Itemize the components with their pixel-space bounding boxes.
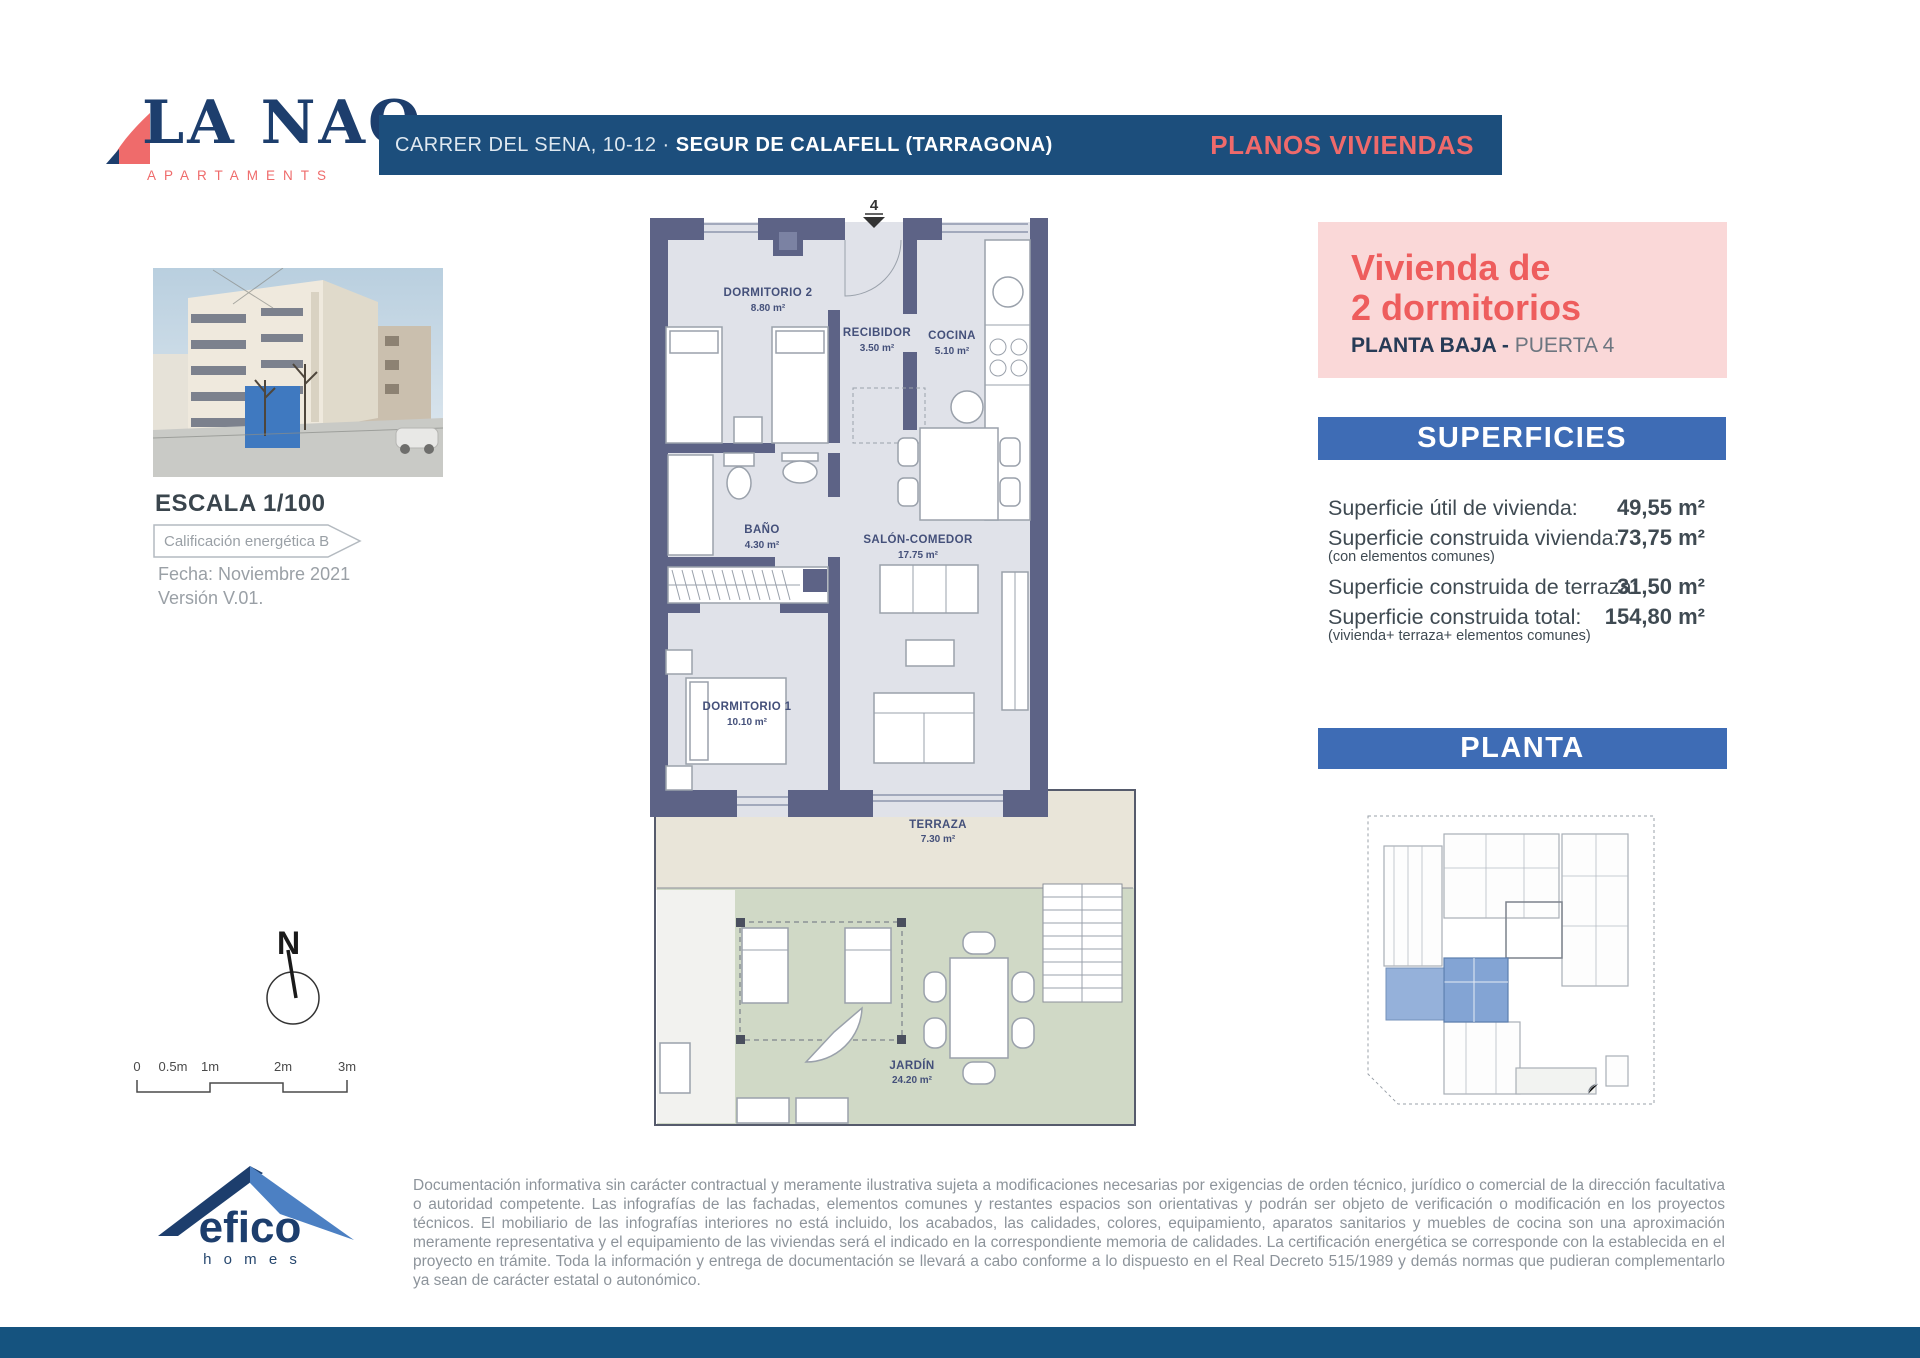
room-label-bano: BAÑO — [744, 523, 779, 536]
address-street: CARRER DEL SENA, 10-12 — [395, 134, 656, 156]
sup-note-construida: (con elementos comunes) — [1328, 549, 1495, 565]
sup-label-util: Superficie útil de vivienda: — [1328, 496, 1578, 521]
apartment-floorplan: 4 DORMITORIO 2 8.80 m² RECIBIDOR 3.50 m²… — [640, 190, 1145, 1140]
scale-bar: 0 0.5m 1m 2m 3m — [125, 1058, 365, 1103]
north-arrow-icon: N — [255, 926, 335, 1030]
scale-tick-2: 2m — [274, 1059, 292, 1074]
superficies-header: SUPERFICIES — [1318, 417, 1726, 460]
unit-title-line1: Vivienda de — [1351, 248, 1581, 288]
sup-value-util: 49,55 m² — [1545, 495, 1705, 521]
header-address: CARRER DEL SENA, 10-12 · SEGUR DE CALAFE… — [395, 134, 1053, 157]
header-address-bar: CARRER DEL SENA, 10-12 · SEGUR DE CALAFE… — [379, 115, 1502, 175]
room-area-jardin: 24.20 m² — [892, 1075, 933, 1086]
fecha-label: Fecha: Noviembre 2021 — [158, 562, 350, 586]
scale-tick-05: 0.5m — [159, 1059, 188, 1074]
efico-homes-logo: efico h o m e s — [150, 1156, 360, 1272]
energy-rating-badge: Calificación energética B — [153, 524, 363, 558]
scale-tick-3: 3m — [338, 1059, 356, 1074]
building-photo — [153, 268, 443, 477]
sup-value-total: 154,80 m² — [1545, 604, 1705, 630]
sup-label-total: Superficie construida total: — [1328, 605, 1581, 630]
room-area-dormitorio1: 10.10 m² — [727, 717, 768, 728]
footer-bar — [0, 1327, 1920, 1358]
room-label-jardin: JARDÍN — [889, 1059, 934, 1072]
plan-flyer-page: LA NAO APARTAMENTS CARRER DEL SENA, 10-1… — [0, 0, 1920, 1358]
efico-logo-text: efico — [199, 1203, 302, 1252]
address-city: SEGUR DE CALAFELL (TARRAGONA) — [676, 134, 1053, 156]
planta-header: PLANTA — [1318, 728, 1727, 769]
energy-rating-text: Calificación energética B — [164, 533, 329, 550]
version-label: Versión V.01. — [158, 586, 350, 610]
room-label-dormitorio1: DORMITORIO 1 — [703, 701, 792, 713]
room-label-dormitorio2: DORMITORIO 2 — [724, 287, 813, 299]
room-label-terraza: TERRAZA — [909, 819, 967, 831]
room-area-salon: 17.75 m² — [898, 550, 939, 561]
unit-title-card: Vivienda de 2 dormitorios PLANTA BAJA - … — [1318, 222, 1727, 378]
escala-label: ESCALA 1/100 — [155, 490, 326, 518]
efico-logo-sub: h o m e s — [203, 1251, 301, 1268]
planos-viviendas-label: PLANOS VIVIENDAS — [1210, 130, 1474, 161]
sup-value-construida: 73,75 m² — [1545, 525, 1705, 551]
room-area-recibidor: 3.50 m² — [860, 343, 895, 354]
brand-tagline: APARTAMENTS — [147, 168, 334, 183]
room-area-dormitorio2: 8.80 m² — [751, 303, 786, 314]
room-label-cocina: COCINA — [928, 330, 976, 342]
unit-subtitle: PLANTA BAJA - PUERTA 4 — [1351, 334, 1614, 358]
room-area-terraza: 7.30 m² — [921, 834, 956, 845]
entry-door-number: 4 — [870, 197, 879, 214]
document-meta: Fecha: Noviembre 2021 Versión V.01. — [158, 562, 350, 610]
room-label-recibidor: RECIBIDOR — [843, 327, 911, 339]
unit-floor: PLANTA BAJA - — [1351, 334, 1509, 357]
unit-title-line2: 2 dormitorios — [1351, 288, 1581, 328]
room-area-bano: 4.30 m² — [745, 540, 780, 551]
room-area-cocina: 5.10 m² — [935, 346, 970, 357]
address-separator: · — [663, 134, 670, 156]
scale-tick-1: 1m — [201, 1059, 219, 1074]
sup-note-total: (vivienda+ terraza+ elementos comunes) — [1328, 628, 1591, 644]
unit-title: Vivienda de 2 dormitorios — [1351, 248, 1581, 328]
unit-door: PUERTA 4 — [1515, 334, 1615, 357]
scale-tick-0: 0 — [133, 1059, 140, 1074]
legal-disclaimer: Documentación informativa sin carácter c… — [413, 1176, 1725, 1290]
sup-value-terraza: 31,50 m² — [1545, 574, 1705, 600]
room-label-salon: SALÓN-COMEDOR — [863, 533, 973, 546]
building-key-plan — [1356, 806, 1666, 1118]
